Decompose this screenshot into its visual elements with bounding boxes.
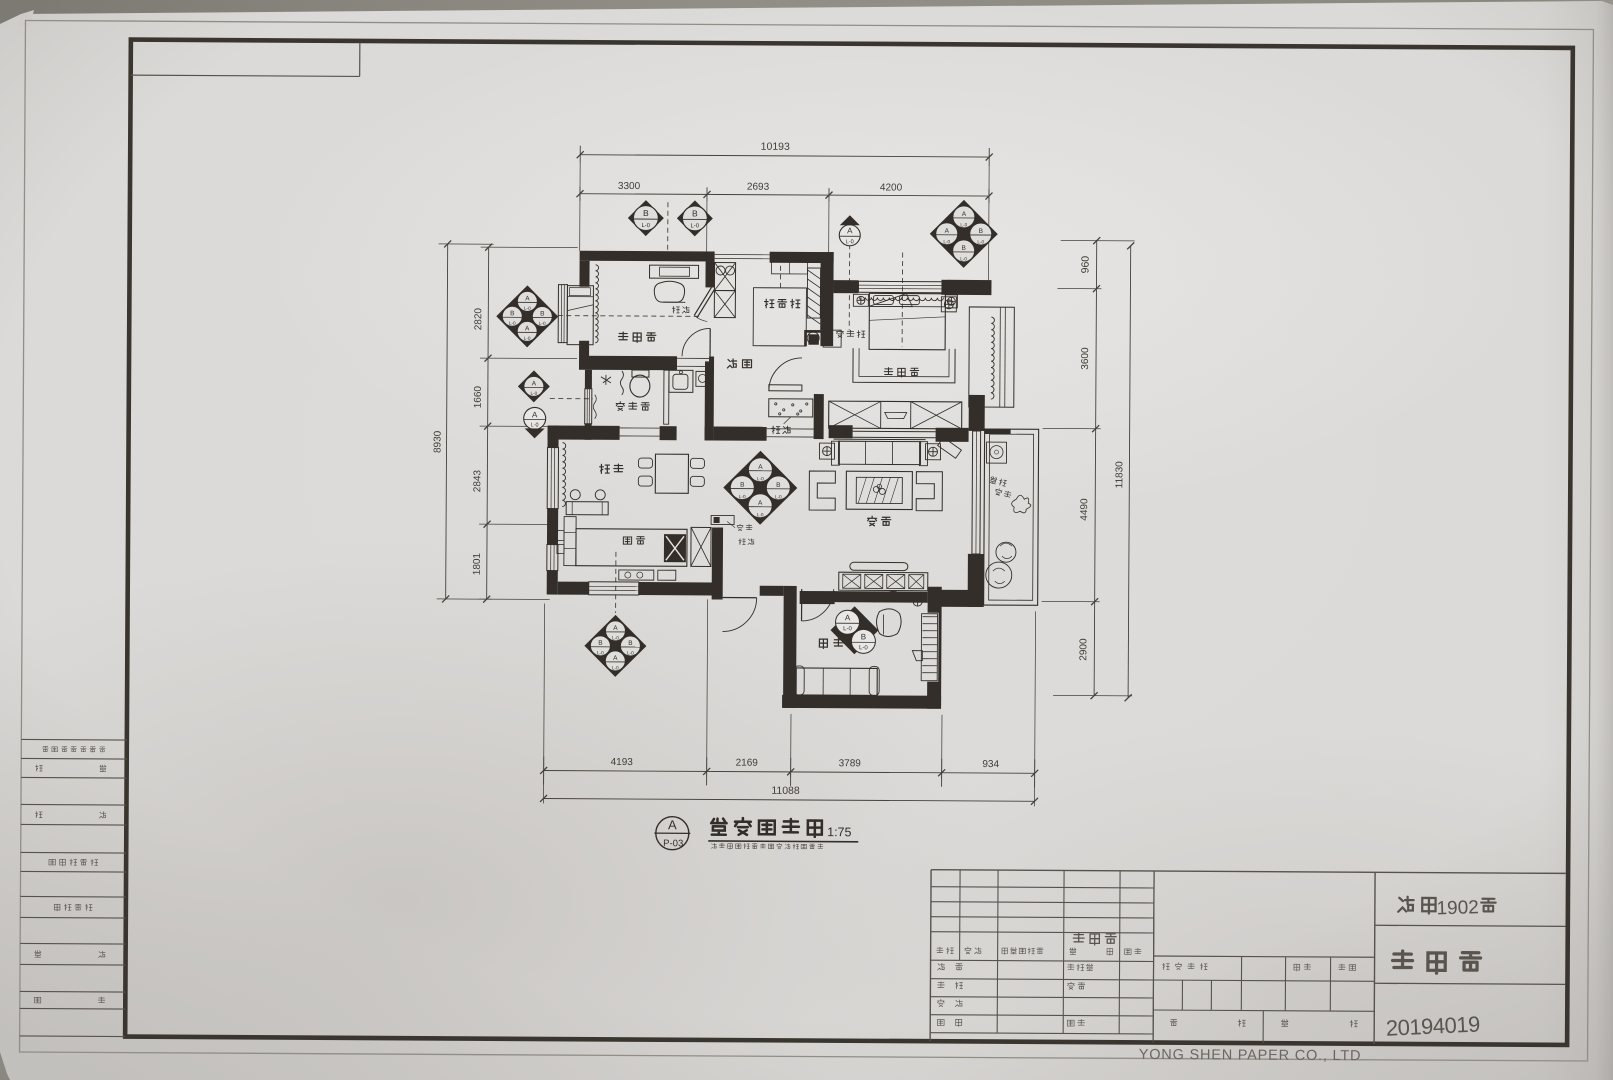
svg-text:L-0: L-0 <box>739 494 746 499</box>
svg-text:B: B <box>598 640 602 647</box>
svg-text:L-0: L-0 <box>943 239 950 244</box>
svg-text:2169: 2169 <box>736 758 759 769</box>
svg-text:3300: 3300 <box>618 181 641 192</box>
svg-text:B: B <box>540 310 544 317</box>
svg-text:A: A <box>613 625 618 632</box>
svg-text:4490: 4490 <box>1079 498 1090 521</box>
svg-text:L-0: L-0 <box>846 239 854 245</box>
svg-text:A: A <box>845 613 851 622</box>
svg-text:B: B <box>510 310 514 317</box>
svg-text:L-0: L-0 <box>597 650 604 655</box>
svg-text:B: B <box>861 632 866 641</box>
svg-text:11088: 11088 <box>771 785 800 797</box>
svg-text:L-0: L-0 <box>530 391 537 396</box>
svg-text:L-0: L-0 <box>960 222 967 227</box>
svg-text:B: B <box>961 245 965 252</box>
svg-text:2693: 2693 <box>747 182 770 193</box>
svg-text:8930: 8930 <box>432 430 443 453</box>
svg-text:960: 960 <box>1080 256 1092 274</box>
svg-text:A: A <box>532 410 538 419</box>
svg-text:L-0: L-0 <box>757 512 764 517</box>
svg-text:L-0: L-0 <box>775 494 782 499</box>
svg-text:L-0: L-0 <box>960 256 967 261</box>
svg-text:L-0: L-0 <box>757 476 764 481</box>
svg-text:L-0: L-0 <box>531 422 539 428</box>
svg-text:A: A <box>945 228 950 235</box>
svg-text:11830: 11830 <box>1114 461 1125 489</box>
svg-text:1801: 1801 <box>472 553 483 576</box>
svg-text:L-0: L-0 <box>690 223 699 229</box>
svg-text:L-0: L-0 <box>977 239 984 244</box>
svg-text:A: A <box>668 817 677 832</box>
svg-text:A: A <box>525 295 530 302</box>
svg-text:L-0: L-0 <box>843 626 852 632</box>
svg-text:L-0: L-0 <box>524 336 531 341</box>
svg-text:L-0: L-0 <box>524 306 531 311</box>
svg-text:P-03: P-03 <box>663 838 683 849</box>
svg-text:3600: 3600 <box>1080 347 1091 370</box>
svg-text:B: B <box>979 228 983 235</box>
svg-text:L-0: L-0 <box>612 665 619 670</box>
svg-text:L-0: L-0 <box>859 645 868 651</box>
svg-text:B: B <box>740 482 744 489</box>
svg-text:20194019: 20194019 <box>1385 1011 1480 1040</box>
svg-text:B: B <box>692 208 698 218</box>
svg-text:B: B <box>776 482 780 489</box>
svg-text:L-0: L-0 <box>612 635 619 640</box>
svg-text:4200: 4200 <box>880 182 903 193</box>
svg-text:L-0: L-0 <box>641 223 650 229</box>
svg-text:2843: 2843 <box>472 470 483 493</box>
svg-text:A: A <box>758 464 763 471</box>
svg-text:10193: 10193 <box>761 141 790 153</box>
svg-text:A: A <box>532 380 537 387</box>
svg-text:1660: 1660 <box>473 386 484 409</box>
svg-text:B: B <box>643 208 649 218</box>
svg-text:A: A <box>758 500 763 507</box>
svg-text:L-0: L-0 <box>627 650 634 655</box>
svg-text:L-0: L-0 <box>509 321 516 326</box>
svg-text:2900: 2900 <box>1078 638 1089 661</box>
svg-text:A: A <box>962 211 967 218</box>
svg-text:A: A <box>525 325 530 332</box>
svg-text:934: 934 <box>982 759 999 770</box>
svg-text:3789: 3789 <box>839 758 862 769</box>
svg-text:A: A <box>613 655 618 662</box>
svg-text:B: B <box>628 640 632 647</box>
svg-text:2820: 2820 <box>473 308 484 331</box>
svg-text:4193: 4193 <box>611 757 634 768</box>
svg-text:YONG SHEN PAPER CO., LTD: YONG SHEN PAPER CO., LTD <box>1139 1047 1362 1064</box>
svg-text:A: A <box>847 226 853 235</box>
svg-text:1:75: 1:75 <box>827 825 851 839</box>
svg-text:1902: 1902 <box>1436 897 1479 919</box>
svg-text:L-0: L-0 <box>539 321 546 326</box>
